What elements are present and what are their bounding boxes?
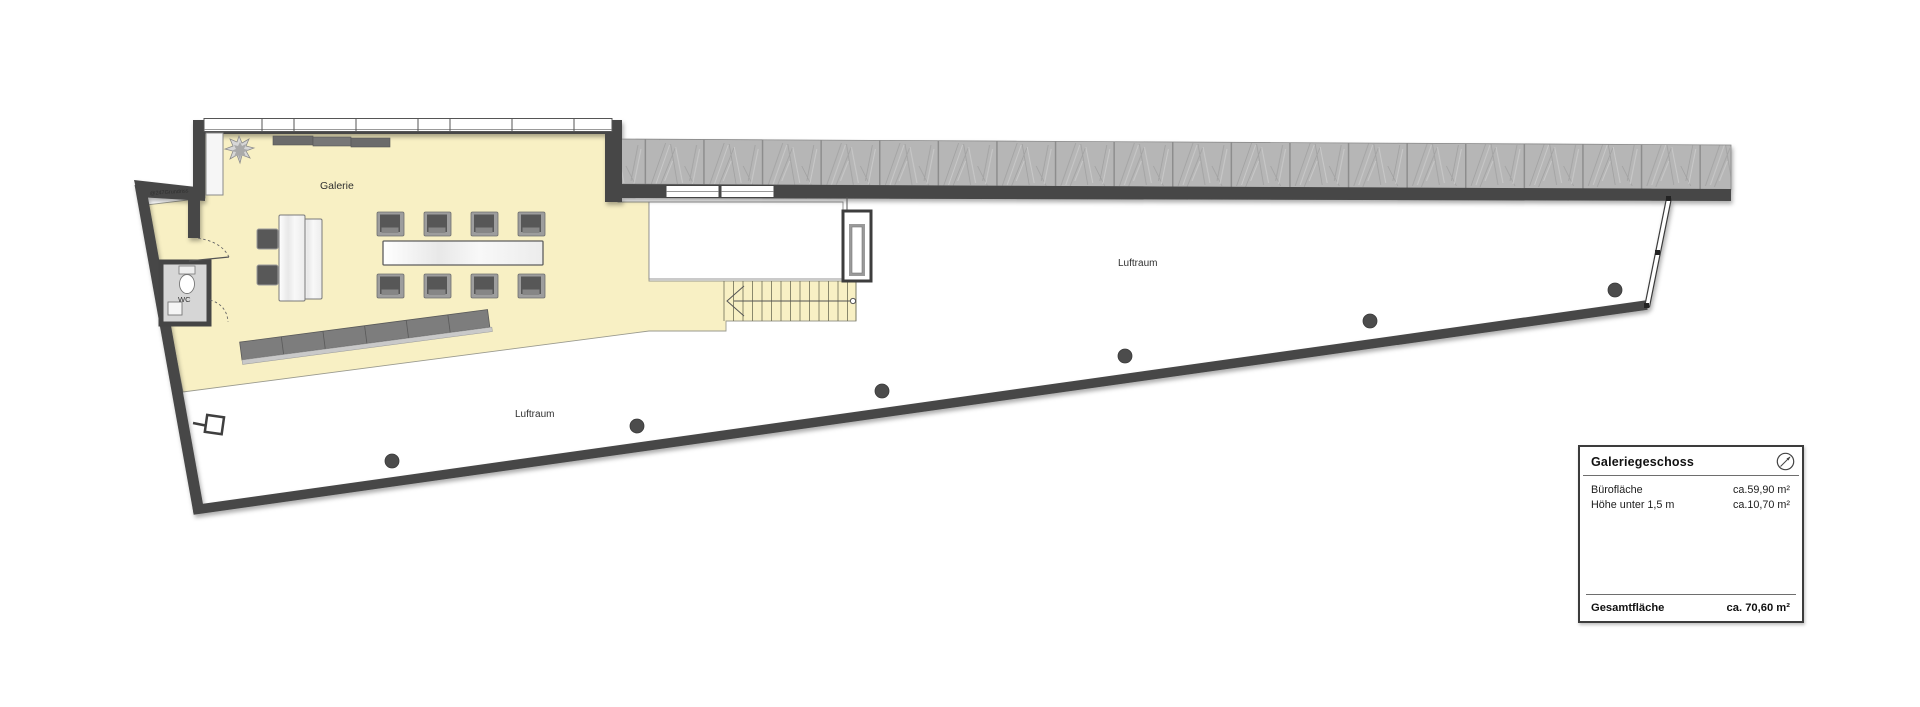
column-dot bbox=[1118, 349, 1132, 363]
column-dot bbox=[1608, 283, 1622, 297]
legend-row-hoehe: Höhe unter 1,5 m ca.10,70 m² bbox=[1591, 498, 1790, 513]
luftraum-left-label: Luftraum bbox=[515, 409, 554, 420]
wc-label: WC bbox=[178, 295, 191, 304]
legend-total-label: Gesamtfläche bbox=[1591, 602, 1664, 614]
legend-total-divider bbox=[1586, 594, 1796, 595]
column-dot bbox=[1363, 314, 1377, 328]
legend-box: Galeriegeschoss Bürofläche ca.59,90 m² H… bbox=[1578, 445, 1804, 623]
luftraum-right-label: Luftraum bbox=[1118, 258, 1157, 269]
legend-row-bueroflaeche: Bürofläche ca.59,90 m² bbox=[1591, 483, 1790, 498]
legend-row-value: ca.10,70 m² bbox=[1733, 498, 1790, 513]
legend-total-row: Gesamtfläche ca. 70,60 m² bbox=[1580, 596, 1802, 621]
duct-shaft bbox=[843, 197, 871, 281]
legend-row-label: Höhe unter 1,5 m bbox=[1591, 498, 1674, 513]
left-corner-wall bbox=[193, 120, 205, 198]
glazed-right-wall bbox=[1644, 196, 1671, 308]
desk bbox=[279, 215, 322, 301]
roof-deck bbox=[618, 139, 1731, 190]
door-jamb-wall bbox=[188, 196, 200, 238]
column-dot bbox=[875, 384, 889, 398]
legend-title: Galeriegeschoss bbox=[1591, 455, 1694, 469]
void-room bbox=[649, 202, 843, 279]
legend-total-value: ca. 70,60 m² bbox=[1727, 602, 1790, 614]
column-dot bbox=[385, 454, 399, 468]
toilet bbox=[180, 275, 195, 294]
conference-table bbox=[383, 241, 543, 265]
left-tall-window bbox=[206, 133, 223, 195]
column-dot bbox=[630, 419, 644, 433]
north-arrow-icon bbox=[1776, 452, 1795, 471]
window-band-top bbox=[204, 119, 612, 132]
legend-row-label: Bürofläche bbox=[1591, 483, 1643, 498]
toilet-tank bbox=[179, 266, 195, 274]
galerie-label: Galerie bbox=[320, 180, 354, 192]
legend-row-value: ca.59,90 m² bbox=[1733, 483, 1790, 498]
outer-post bbox=[193, 415, 224, 434]
